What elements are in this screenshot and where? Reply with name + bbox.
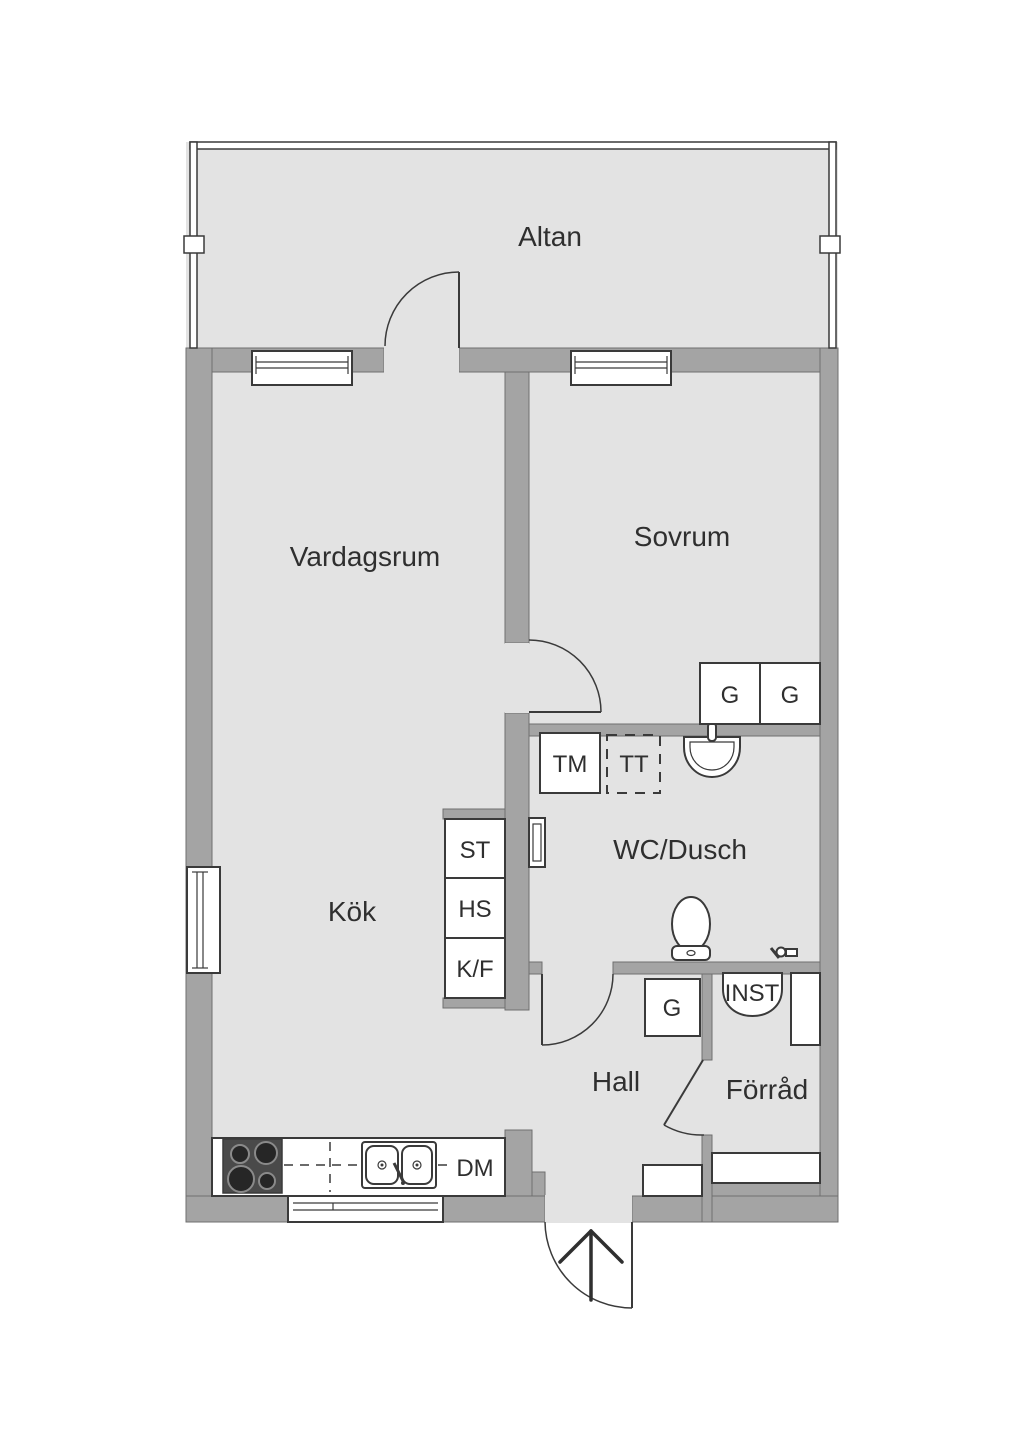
installation-label: INST (725, 980, 780, 1007)
tall-unit-hs-label: HS (458, 896, 491, 923)
installation-unit: INST (723, 973, 782, 1016)
entrance-door-opening (545, 1195, 632, 1223)
wall-stub-entrance-foot (532, 1172, 545, 1196)
dishwasher-label: DM (456, 1155, 493, 1182)
stove-icon (223, 1139, 282, 1193)
window-bedroom (571, 351, 671, 385)
tall-unit-st-label: ST (460, 837, 491, 864)
hall-shelf (643, 1165, 702, 1196)
wall-hall-storage-upper (702, 974, 712, 1060)
room-label-wc-dusch: WC/Dusch (613, 834, 747, 865)
storage-duct (791, 973, 820, 1045)
tall-unit-kf-label: K/F (456, 956, 493, 983)
railing-post-left (184, 236, 204, 253)
wall-stub-bathroom-door (529, 962, 542, 974)
window-livingroom (252, 351, 352, 385)
wall-kitchen-bathroom (505, 713, 529, 1010)
tumble-dryer-label: TT (619, 751, 649, 778)
floor-plan: DM ST HS K/F TM TT G G (0, 0, 1024, 1448)
sink-icon (362, 1142, 436, 1188)
storage-shelf (712, 1153, 820, 1183)
cabinet-end-panel-bottom (443, 998, 505, 1008)
washing-machine: TM (540, 733, 600, 793)
washing-machine-label: TM (553, 751, 588, 778)
wall-bottom-right (632, 1196, 838, 1222)
cabinet-end-panel-top (443, 809, 505, 819)
entrance-arrow (560, 1231, 622, 1300)
hall-wardrobe-label: G (663, 995, 682, 1022)
railing-post-right (820, 236, 840, 253)
wardrobe-left-label: G (721, 682, 740, 709)
room-label-hall: Hall (592, 1066, 640, 1097)
room-label-vardagsrum: Vardagsrum (290, 541, 440, 572)
window-kitchen-left (187, 867, 220, 973)
kitchen-tall-units: ST HS K/F (445, 819, 505, 998)
wall-stub-kitchen-entrance (505, 1130, 532, 1196)
railing-top (190, 142, 836, 149)
wall-bathroom-hall (613, 962, 820, 974)
bedroom-wardrobes: G G (700, 663, 820, 724)
wall-left (186, 348, 212, 1222)
room-label-kok: Kök (328, 896, 377, 927)
wall-livingroom-bedroom (505, 372, 529, 643)
hall-wardrobe: G (645, 979, 700, 1036)
room-label-forrad: Förråd (726, 1074, 808, 1105)
room-label-altan: Altan (518, 221, 582, 252)
bedroom-door-opening (505, 643, 529, 713)
wall-hall-storage-lower (702, 1135, 712, 1222)
balcony-door-opening (384, 347, 459, 373)
wall-under-storage-shelf (712, 1183, 820, 1196)
wall-niche (529, 818, 545, 867)
toilet-icon (672, 897, 710, 960)
wardrobe-right-label: G (781, 682, 800, 709)
wall-right (820, 348, 838, 1222)
room-label-sovrum: Sovrum (634, 521, 730, 552)
